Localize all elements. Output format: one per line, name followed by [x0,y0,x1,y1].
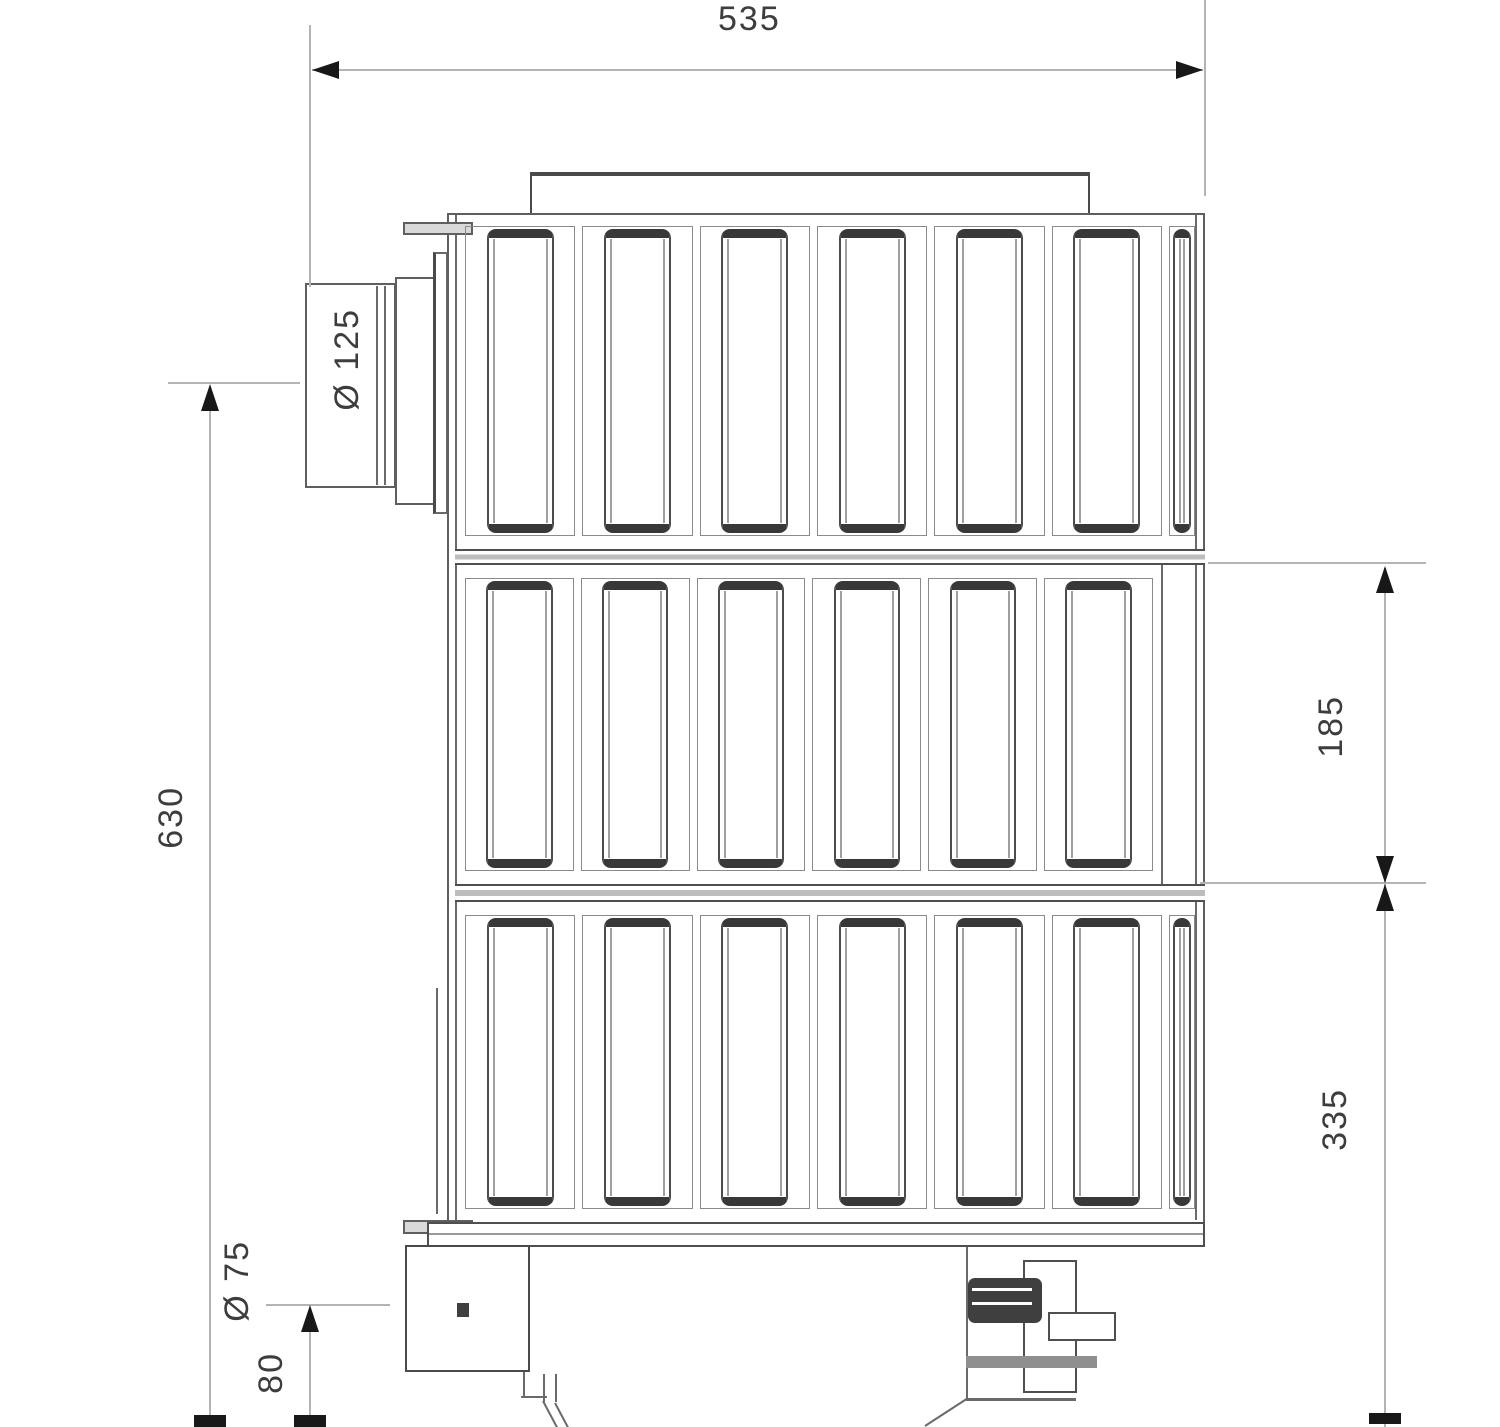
valve-handle [1048,1312,1116,1341]
technical-drawing-canvas: Ø 125 535 630 [0,0,1500,1427]
slot-opening [839,229,906,533]
dim-80-ext-top [266,1304,390,1306]
top-cover-plate [530,172,1090,215]
gas-injector [968,1278,1042,1323]
slot-opening [1073,229,1140,533]
dim-185-335-line [1384,568,1386,1427]
slot-opening [487,229,554,533]
heat-exchanger-slot [697,578,806,871]
dim-80-label: 80 [252,1352,291,1394]
heat-exchanger-slot [1052,226,1162,536]
valve-bar [966,1356,1097,1368]
heat-exchanger-slot [465,226,575,536]
flue-diameter-label: Ø 125 [328,308,367,411]
slot-opening [1073,918,1140,1206]
dim-80-end-bottom [294,1415,326,1427]
dim-185-arrow-bottom [1376,856,1394,883]
slot-opening [718,581,784,868]
heat-exchanger-slot [928,578,1037,871]
drain-diameter-label: Ø 75 [218,1240,257,1322]
heat-exchanger-slot [700,226,810,536]
slot-opening [604,918,671,1206]
flue-duct-inner-line-2 [384,286,386,485]
dim-630-line [209,388,211,1427]
heat-exchanger-slot [1044,578,1153,871]
slot-opening [956,918,1023,1206]
flue-duct-inner-line-1 [376,286,378,485]
heat-exchanger-slot [812,578,921,871]
heat-exchanger-slot [582,226,692,536]
heat-exchanger-slot [581,578,690,871]
module-joint-band-1 [455,549,1205,565]
dim-630-ext-top [168,382,300,384]
body-outer-shell-line [436,988,438,1214]
flue-duct-flange [433,252,448,514]
front-leg-line-1 [543,1374,545,1402]
slot-opening [486,581,552,868]
dim-535-ext-right [1204,0,1206,196]
flue-duct-transition [395,277,436,505]
slot-opening [956,229,1023,533]
valve-bottom-line [966,1398,1076,1401]
dim-335-arrow-top [1376,884,1394,911]
dim-185-label: 185 [1312,695,1351,758]
drain-lower-line-1 [523,1372,525,1398]
dim-185-ext-top [1208,562,1426,564]
heat-exchanger-slot [817,915,927,1209]
heat-exchanger-slot [934,226,1044,536]
dim-335-end-bottom [1369,1413,1401,1424]
module-row-middle [455,565,1163,884]
slot-opening [604,229,671,533]
middle-row-right-edge [1161,565,1163,884]
heat-exchanger-slot [1052,915,1162,1209]
heat-exchanger-slot [1169,915,1195,1209]
dim-630-arrow-top [201,384,219,411]
heat-exchanger-slot [465,915,575,1209]
slot-opening [721,918,788,1206]
slot-opening [721,229,788,533]
burner-left-line [966,1247,968,1400]
base-plate [427,1222,1205,1247]
heat-exchanger-slot [1169,226,1195,536]
module-joint-band-2 [455,884,1205,902]
slot-opening [1173,229,1190,533]
heat-exchanger-slot [934,915,1044,1209]
dim-335-label: 335 [1316,1088,1355,1151]
dim-535-arrow-right [1176,61,1203,79]
slot-opening [487,918,554,1206]
dim-630-label: 630 [152,786,191,849]
dim-535-line [312,69,1203,71]
heat-exchanger-slot [582,915,692,1209]
dim-535-label: 535 [718,0,781,39]
module-row-bottom [455,902,1205,1222]
slot-opening [950,581,1016,868]
dim-630-end-bottom [194,1415,226,1427]
heat-exchanger-slot [700,915,810,1209]
hopper-diagonal [924,1398,967,1427]
slot-opening [602,581,668,868]
slot-opening [834,581,900,868]
dim-535-ext-left [309,25,311,287]
heat-exchanger-slot [817,226,927,536]
dim-535-arrow-left [312,61,339,79]
front-leg-line-2 [555,1374,557,1402]
drain-socket-dot [457,1303,469,1317]
module-row-top [455,213,1205,549]
slot-opening [1173,918,1190,1206]
heat-exchanger-slot [465,578,574,871]
dim-185-arrow-top [1376,566,1394,593]
slot-opening [1065,581,1131,868]
dim-80-arrow-top [301,1305,319,1332]
slot-opening [839,918,906,1206]
